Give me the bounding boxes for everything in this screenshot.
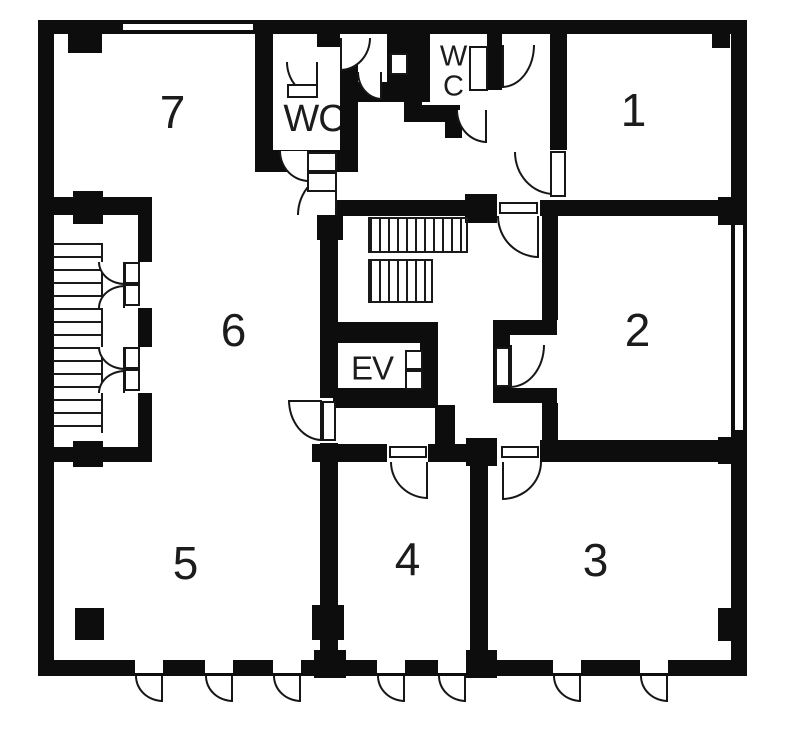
- gap-entry-door-7: [640, 660, 668, 673]
- room-label-1: 1: [621, 87, 646, 133]
- door-hall-room6: [288, 400, 322, 441]
- column-room5: [75, 608, 104, 640]
- door-entry-1: [135, 676, 163, 702]
- wall-room2-bottom: [540, 440, 747, 462]
- pier-right-room3: [718, 608, 742, 641]
- door-lobby-hall: [497, 216, 539, 258]
- room-label-4: 4: [395, 536, 420, 582]
- door-entry-7: [640, 676, 668, 702]
- gap-stairwell-door-1: [138, 262, 152, 308]
- wall-ev-top: [333, 322, 438, 343]
- door-vestibule: [340, 38, 371, 71]
- door-room2: [510, 345, 545, 388]
- leaf-room1: [550, 151, 566, 197]
- pier-right-room1: [718, 197, 742, 225]
- door-entry-2: [205, 676, 233, 702]
- door-entry-4: [377, 676, 405, 702]
- window-right: [733, 225, 745, 430]
- leaf-room2: [495, 347, 510, 387]
- wall-wc-right-right: [487, 33, 502, 90]
- pier-wall6-mid: [312, 605, 344, 640]
- wall-wc-right-bottom: [404, 105, 460, 122]
- leaf-ev-1: [405, 350, 423, 370]
- room-label-3: 3: [583, 537, 608, 583]
- leaf-hall-room6: [322, 401, 336, 441]
- wall-corridor-south-west: [320, 200, 465, 216]
- pier-divider-bottom: [466, 650, 497, 678]
- wall-exterior-left: [38, 20, 54, 676]
- wall-below-ev: [435, 405, 455, 448]
- elevator-label: EV: [351, 352, 393, 385]
- door-entry-5: [438, 676, 466, 702]
- door-entry-6: [553, 676, 581, 702]
- leaf-stairwell-1a: [124, 262, 140, 284]
- pier-room1-corner: [712, 33, 730, 48]
- room-label-5: 5: [173, 540, 198, 586]
- wc-left-label: WC: [283, 100, 344, 138]
- wall-ev-bottom: [333, 388, 438, 408]
- pier-divider-top: [466, 438, 497, 466]
- pier-wall6-bottom: [314, 650, 346, 678]
- leaf-corridor-1: [307, 152, 337, 172]
- leaf-room4: [389, 446, 427, 458]
- pier-corridor-south: [465, 194, 497, 223]
- wall-stairwell-right: [138, 197, 152, 462]
- wall-room7-right: [255, 33, 273, 150]
- room-label-7: 7: [160, 89, 185, 135]
- gap-entry-door-1: [135, 660, 163, 673]
- leaf-corridor-2: [307, 172, 337, 192]
- door-entry-3: [273, 676, 301, 702]
- wc-right-label-line2: C: [443, 73, 463, 102]
- pier-room7-top: [68, 33, 102, 53]
- leaf-vestibule-inner: [390, 53, 408, 75]
- stairs-main-upper: [368, 217, 468, 253]
- door-room1: [514, 152, 554, 195]
- door-corridor-top: [279, 151, 309, 182]
- wall-mid-horizontal-b: [428, 444, 466, 462]
- floor-plan: 7 6 5 4 3 2 1 WC W C EV: [0, 0, 800, 732]
- gap-entry-door-6: [553, 660, 581, 673]
- leaf-wc-left: [287, 84, 318, 98]
- leaf-stairwell-1b: [124, 284, 140, 306]
- wall-top-stub: [317, 33, 340, 47]
- pier-stairwell-top: [73, 191, 103, 224]
- wall-room1-left: [550, 33, 567, 150]
- leaf-stairwell-2a: [124, 347, 140, 369]
- wall-divider-rooms34: [470, 444, 488, 676]
- leaf-room3: [501, 446, 539, 458]
- stairs-west: [53, 243, 103, 433]
- wall-corridor-south-east: [540, 200, 747, 216]
- pier-stairwell-bottom: [73, 441, 103, 467]
- window-top: [123, 22, 253, 32]
- wall-hall-east-upper: [542, 216, 558, 320]
- wall-hall-west-upper: [320, 216, 338, 398]
- leaf-lobby-hall: [499, 202, 538, 214]
- pier-hall-nw: [317, 215, 343, 240]
- door-wc-right: [502, 45, 535, 88]
- room-label-2: 2: [625, 307, 650, 353]
- room-label-6: 6: [221, 307, 246, 353]
- stairs-main-lower: [368, 259, 433, 303]
- gap-entry-door-2: [205, 660, 233, 673]
- wc-right-label-line1: W: [440, 43, 466, 72]
- gap-entry-door-4: [377, 660, 405, 673]
- pier-right-room2: [718, 437, 742, 464]
- door-room4: [390, 462, 428, 499]
- gap-stairwell-door-2: [138, 347, 152, 393]
- door-wc-right-south: [456, 110, 487, 143]
- leaf-stairwell-2b: [124, 369, 140, 391]
- wall-room2-alcove-bottom: [493, 388, 557, 403]
- wall-mid-horizontal-a: [312, 444, 387, 462]
- gap-entry-door-3: [273, 660, 301, 673]
- gap-entry-door-5: [438, 660, 466, 673]
- leaf-ev-2: [405, 370, 423, 390]
- leaf-wc-right: [469, 46, 488, 91]
- door-room3: [502, 462, 542, 500]
